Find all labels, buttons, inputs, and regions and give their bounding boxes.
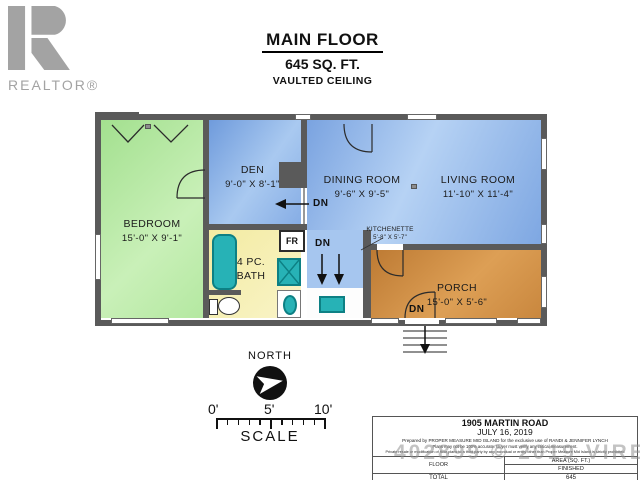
room-dims: 15'-0" X 9'-1" [122,233,182,244]
scale-tick-5: 5' [264,401,274,417]
scale-tick-0: 0' [208,401,218,417]
table-total-value: 645 [505,473,637,480]
dn-label-den: DN [313,198,328,209]
room-name: PORCH [437,282,477,294]
plan-date: JULY 16, 2019 [375,428,635,438]
scale-tick-10: 10' [314,401,332,417]
compass-icon [251,364,289,402]
scale-label: SCALE [228,428,312,445]
room-name: 4 PC. [237,256,265,268]
floorplan-drawing: FR [95,112,555,372]
room-name: BATH [237,270,266,282]
closet-door-icon [112,125,144,142]
room-name: DEN [241,164,264,176]
table-finished-cell: FINISHED [505,465,637,473]
realtor-r-icon [8,6,72,70]
room-dims: 5'-8" X 5'-7" [373,235,407,241]
kitchenette-label: KITCHENETTE 5'-8" X 5'-7" [345,226,435,243]
page-title: MAIN FLOOR [262,30,383,53]
door-arc [177,170,205,198]
area-subtitle: 645 SQ. FT. [225,56,420,72]
room-name: BEDROOM [123,218,180,230]
ceiling-subtitle: VAULTED CEILING [225,75,420,87]
plan-title-block: MAIN FLOOR 645 SQ. FT. VAULTED CEILING [225,30,420,87]
area-table-total-row: TOTAL 645 [373,473,637,480]
table-total-label: TOTAL [373,473,505,480]
porch-label: PORCH 15'-0" X 5'-6" [385,282,529,309]
down-arrow-icon [317,274,327,285]
bedroom-label: BEDROOM 15'-0" X 9'-1" [103,218,201,245]
north-label: NORTH [228,350,312,362]
room-name: KITCHENETTE [366,226,413,233]
down-arrow-icon [275,199,286,209]
room-dims: 9'-0" X 8'-1" [225,179,280,190]
den-label: DEN 9'-0" X 8'-1" [205,164,300,191]
dn-label-porch: DN [409,304,424,315]
room-dims: 9'-6" X 9'-5" [335,189,390,200]
door-arc [344,124,372,152]
realtor-wordmark: REALTOR® [8,77,118,93]
closet-door-icon [154,125,188,142]
down-arrow-icon [334,274,344,285]
realtor-logo: REALTOR® [8,6,118,93]
door-arc [377,250,403,276]
floorplan-page: REALTOR® MAIN FLOOR 645 SQ. FT. VAULTED … [0,0,640,480]
bath-label: 4 PC. BATH [223,256,279,283]
living-label: LIVING ROOM 11'-10" X 11'-4" [421,174,535,201]
room-dims: 15'-0" X 5'-6" [427,297,487,308]
room-dims: 11'-10" X 11'-4" [443,189,513,200]
room-name: DINING ROOM [324,174,401,186]
dn-label-kitchenette: DN [315,238,330,249]
mls-watermark: 402899 © 2019 VIREB [394,441,640,465]
room-name: LIVING ROOM [441,174,515,186]
